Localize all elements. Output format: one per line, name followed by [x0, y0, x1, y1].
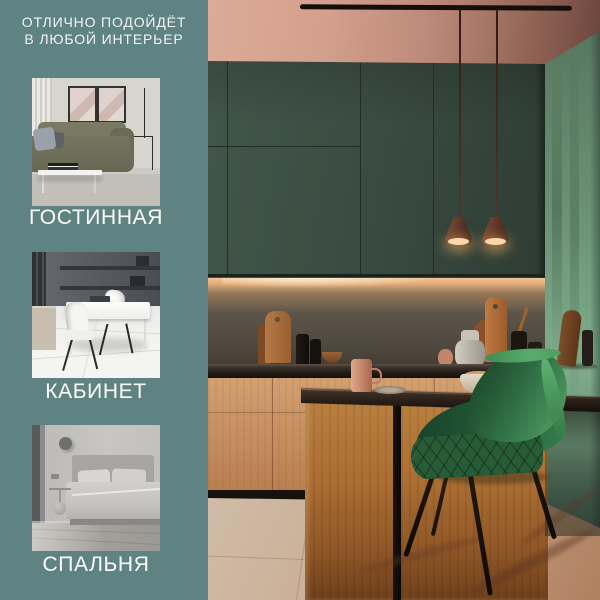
pendant-cord: [459, 9, 461, 220]
sidebar: ОТЛИЧНО ПОДОЙДЁТ В ЛЮБОЙ ИНТЕРЬЕР ГОСТИН…: [0, 0, 208, 600]
bottle: [582, 330, 593, 366]
spice-jar: [296, 334, 309, 364]
rug: [32, 174, 160, 206]
window: [32, 425, 45, 527]
room-label-living-room: ГОСТИННАЯ: [20, 206, 172, 230]
coffee-table: [38, 170, 102, 175]
cabinet: [32, 306, 56, 350]
bed: [66, 482, 160, 519]
poster: [68, 86, 97, 123]
mug: [351, 359, 372, 392]
pendant-cord: [496, 9, 498, 220]
pillow: [33, 127, 57, 152]
headline-line-2: В ЛЮБОЙ ИНТЕРЬЕР: [0, 31, 208, 48]
shelf: [60, 266, 160, 270]
living-room-photo: [32, 78, 160, 206]
books: [48, 163, 78, 170]
window: [32, 252, 46, 314]
office-photo: [32, 252, 160, 378]
room-label-bedroom: СПАЛЬНЯ: [20, 553, 172, 577]
room-label-office: КАБИНЕТ: [20, 380, 172, 404]
wall-lamp: [59, 437, 72, 450]
headline-line-1: ОТЛИЧНО ПОДОЙДЁТ: [0, 14, 208, 31]
bedroom-photo: [32, 425, 160, 551]
table-leg: [393, 402, 401, 600]
floor-lamp: [144, 88, 145, 138]
upper-cabinets: [208, 58, 545, 278]
poster: [97, 86, 126, 123]
headline: ОТЛИЧНО ПОДОЙДЁТ В ЛЮБОЙ ИНТЕРЬЕР: [0, 14, 208, 48]
ceramic-pot: [455, 340, 485, 367]
plate: [374, 386, 406, 394]
kitchen-photo: [208, 0, 600, 600]
product-card: ОТЛИЧНО ПОДОЙДЁТ В ЛЮБОЙ ИНТЕРЬЕР ГОСТИН…: [0, 0, 600, 600]
spice-jar: [310, 339, 321, 364]
